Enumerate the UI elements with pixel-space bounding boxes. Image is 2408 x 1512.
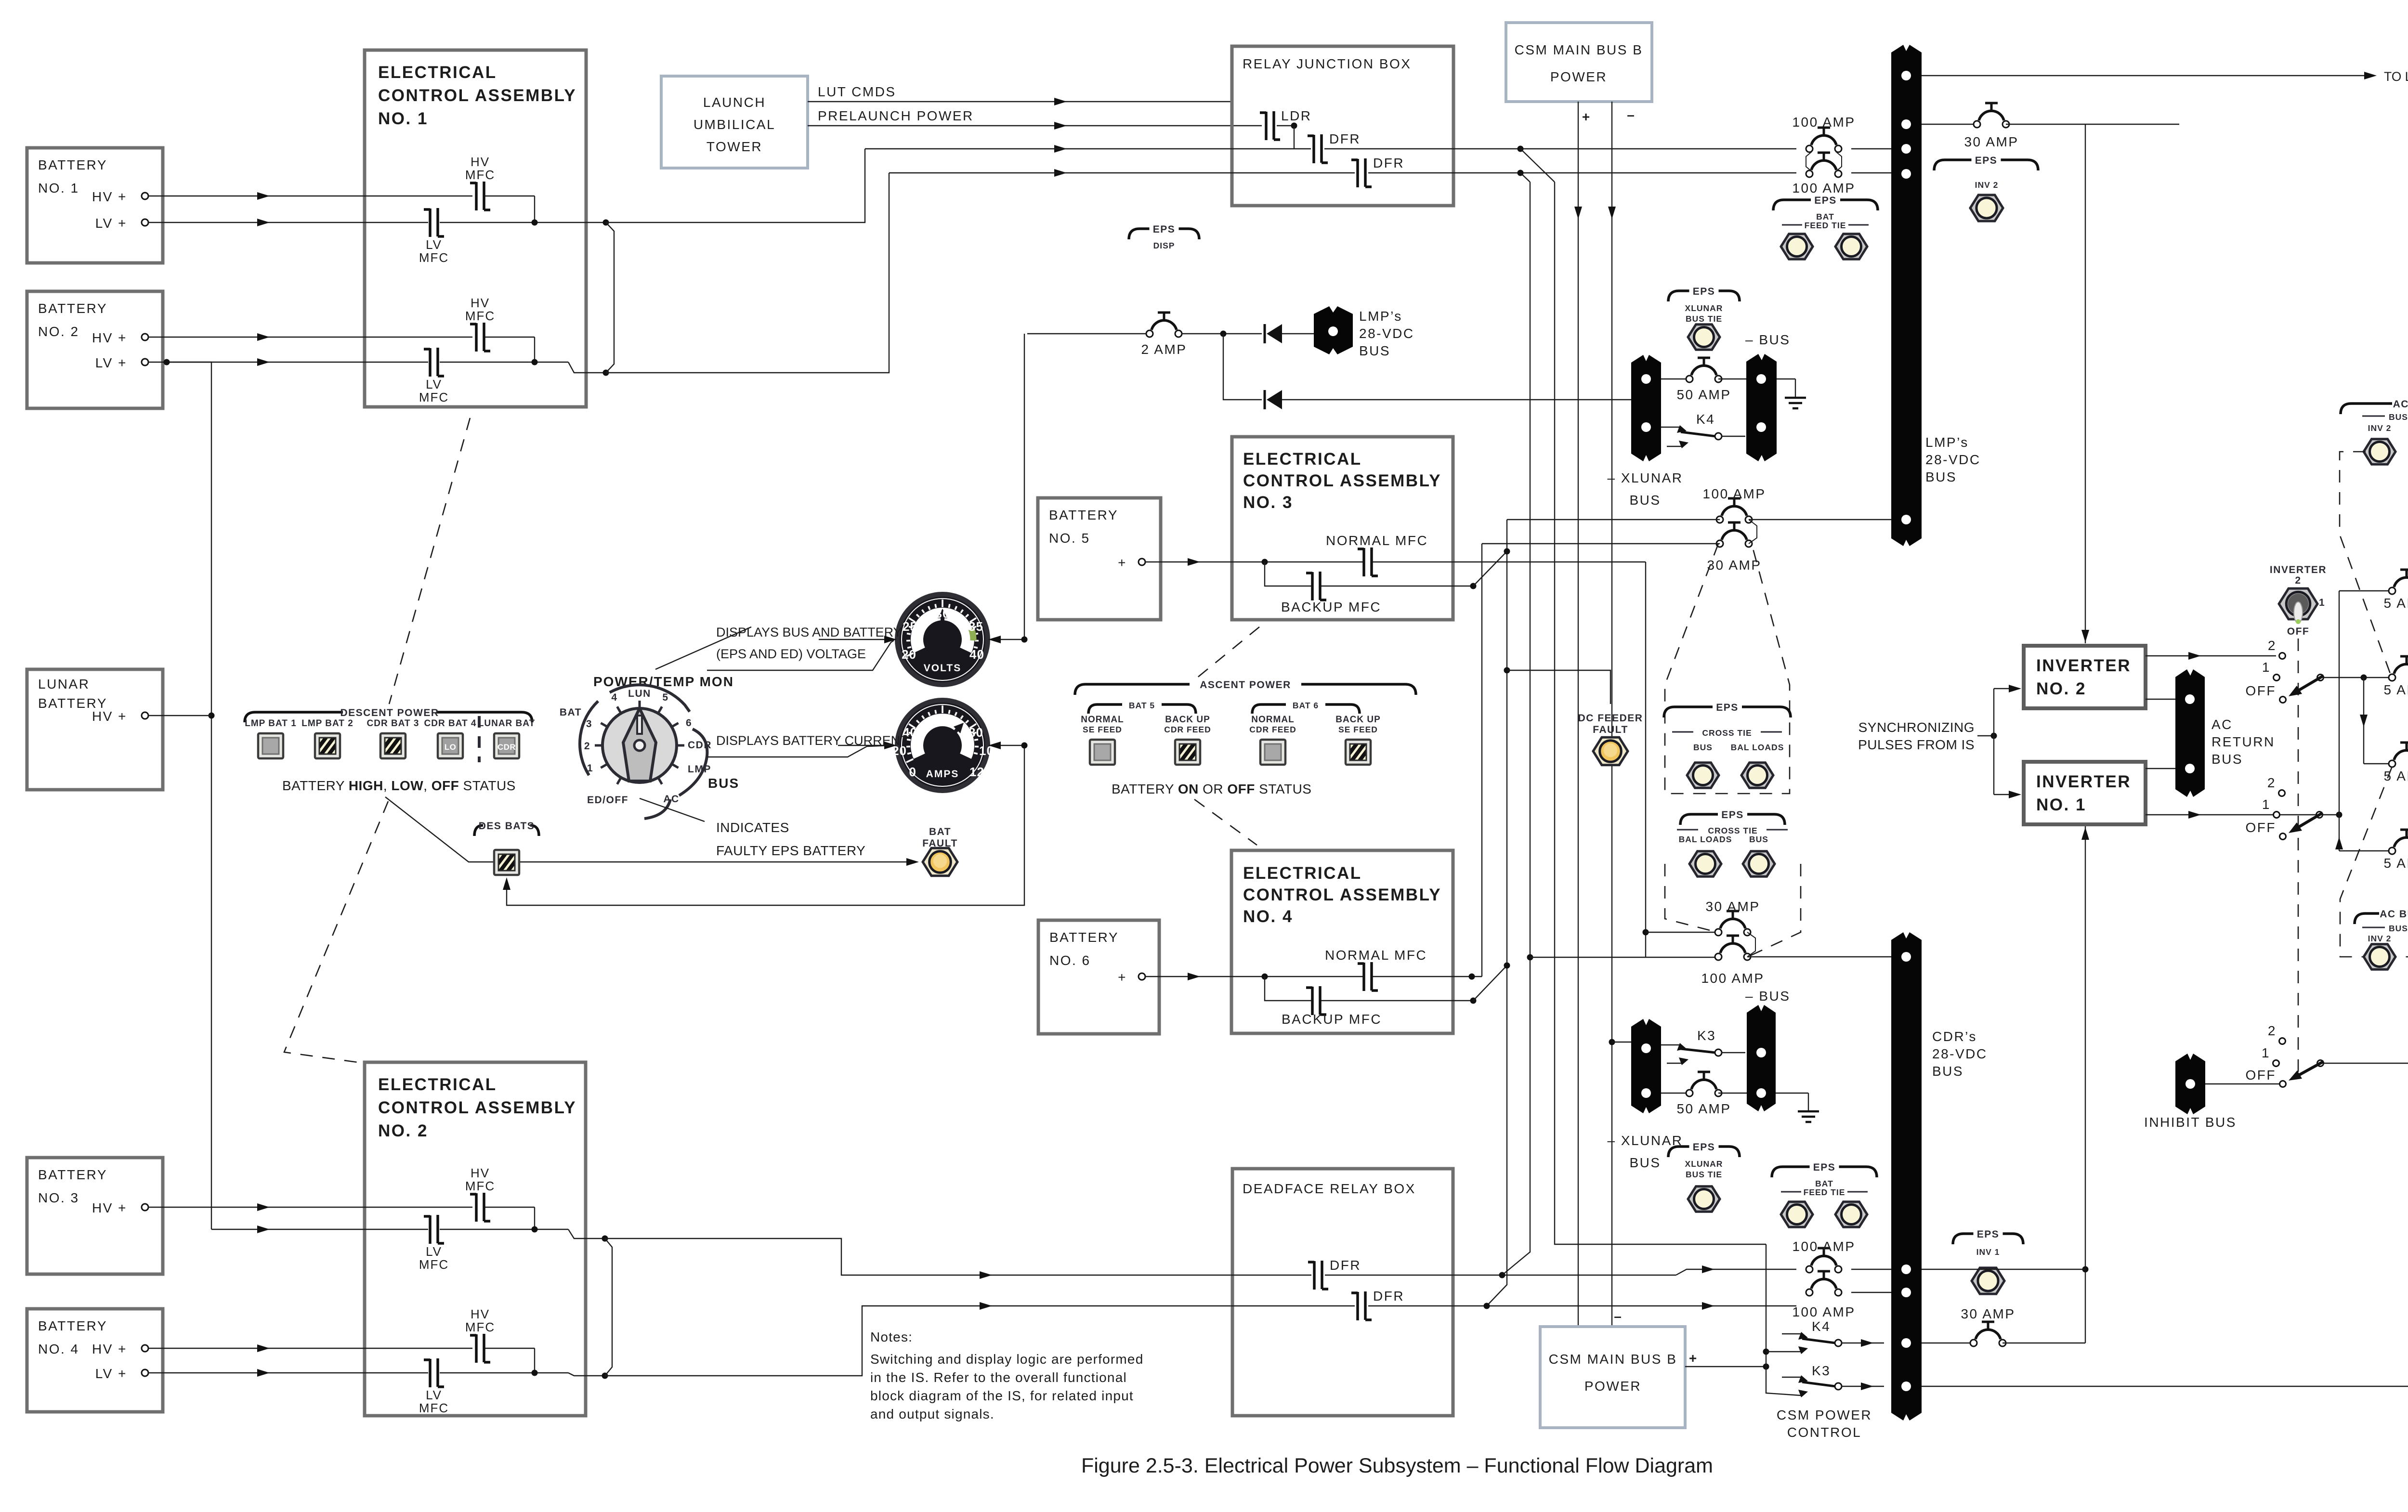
svg-text:OFF: OFF xyxy=(2246,820,2277,835)
svg-text:SE FEED: SE FEED xyxy=(1338,725,1378,734)
svg-text:NO. 1: NO. 1 xyxy=(2036,795,2086,814)
svg-text:VOLTS: VOLTS xyxy=(924,663,961,674)
svg-text:SYNCHRONIZING: SYNCHRONIZING xyxy=(1858,720,1975,735)
svg-text:NO. 4: NO. 4 xyxy=(38,1342,79,1356)
svg-text:INDICATES: INDICATES xyxy=(716,820,789,835)
svg-text:ELECTRICAL: ELECTRICAL xyxy=(378,1075,497,1094)
svg-text:NO. 4: NO. 4 xyxy=(1243,907,1293,926)
svg-text:20: 20 xyxy=(902,647,916,662)
svg-text:1: 1 xyxy=(2262,1045,2270,1060)
svg-text:5 AMP: 5 AMP xyxy=(2384,856,2408,871)
svg-text:HV +: HV + xyxy=(92,709,127,724)
svg-text:NO. 1: NO. 1 xyxy=(378,109,428,128)
svg-text:30: 30 xyxy=(935,606,950,621)
svg-text:LV +: LV + xyxy=(95,216,127,231)
svg-text:EPS: EPS xyxy=(1716,702,1739,713)
svg-text:DFR: DFR xyxy=(1330,1258,1361,1273)
svg-text:NORMAL MFC: NORMAL MFC xyxy=(1326,533,1428,548)
svg-text:DFR: DFR xyxy=(1329,131,1361,146)
svg-text:DISPLAYS BUS AND BATTERY: DISPLAYS BUS AND BATTERY xyxy=(716,625,902,639)
svg-text:2 AMP: 2 AMP xyxy=(1141,342,1187,357)
svg-text:CONTROL ASSEMBLY: CONTROL ASSEMBLY xyxy=(378,86,576,105)
svg-text:(EPS AND ED) VOLTAGE: (EPS AND ED) VOLTAGE xyxy=(716,647,866,661)
svg-text:HV: HV xyxy=(471,1166,490,1180)
svg-text:– XLUNAR: – XLUNAR xyxy=(1608,470,1683,485)
svg-text:CDR BAT 3: CDR BAT 3 xyxy=(367,718,419,729)
svg-text:MFC: MFC xyxy=(419,1257,449,1272)
svg-text:NO. 2: NO. 2 xyxy=(38,324,79,339)
svg-text:NORMAL MFC: NORMAL MFC xyxy=(1325,948,1427,963)
svg-text:LUNAR BAT: LUNAR BAT xyxy=(478,718,535,729)
svg-text:LUN: LUN xyxy=(628,688,651,699)
svg-text:CONTROL ASSEMBLY: CONTROL ASSEMBLY xyxy=(1243,471,1441,490)
svg-text:30 AMP: 30 AMP xyxy=(1964,134,2018,149)
svg-text:– BUS: – BUS xyxy=(1745,332,1790,347)
svg-text:4: 4 xyxy=(611,692,617,703)
svg-text:LMP’s: LMP’s xyxy=(1359,309,1402,324)
svg-text:INV 2: INV 2 xyxy=(1975,180,1999,190)
svg-text:FEED TIE: FEED TIE xyxy=(1804,1187,1845,1197)
svg-text:60: 60 xyxy=(935,712,950,727)
svg-text:UMBILICAL: UMBILICAL xyxy=(694,117,775,132)
svg-text:LUNAR: LUNAR xyxy=(38,677,90,691)
svg-text:in the IS. Refer to the overal: in the IS. Refer to the overall function… xyxy=(870,1370,1127,1385)
svg-text:BUS TIE: BUS TIE xyxy=(2389,412,2408,422)
svg-text:BUS TIE: BUS TIE xyxy=(2389,924,2408,933)
svg-text:BUS: BUS xyxy=(1693,743,1713,752)
svg-text:SE FEED: SE FEED xyxy=(1083,725,1122,734)
svg-text:OFF: OFF xyxy=(2287,626,2310,637)
svg-text:100 AMP: 100 AMP xyxy=(1792,181,1855,196)
svg-text:CSM POWER: CSM POWER xyxy=(1777,1408,1872,1422)
svg-text:2: 2 xyxy=(584,741,590,752)
svg-text:K4: K4 xyxy=(1696,412,1715,427)
svg-text:MFC: MFC xyxy=(465,168,495,182)
svg-text:INV 2: INV 2 xyxy=(2368,934,2392,943)
svg-text:HV: HV xyxy=(471,1307,490,1321)
svg-text:30 AMP: 30 AMP xyxy=(1705,899,1760,914)
svg-text:INVERTER: INVERTER xyxy=(2036,656,2131,675)
svg-text:INVERTER: INVERTER xyxy=(2036,772,2131,791)
svg-text:NO. 3: NO. 3 xyxy=(1243,493,1293,512)
svg-text:AC: AC xyxy=(663,794,679,805)
svg-text:ED/OFF: ED/OFF xyxy=(587,795,628,806)
svg-text:EPS: EPS xyxy=(1977,1229,2000,1240)
svg-text:NO. 5: NO. 5 xyxy=(1049,531,1090,546)
svg-text:30 AMP: 30 AMP xyxy=(1961,1306,2015,1321)
svg-text:BATTERY: BATTERY xyxy=(38,1167,107,1182)
svg-text:+: + xyxy=(1689,1351,1698,1366)
svg-text:CSM MAIN BUS B: CSM MAIN BUS B xyxy=(1515,42,1643,57)
svg-text:NO. 6: NO. 6 xyxy=(1049,953,1091,968)
svg-text:BACKUP MFC: BACKUP MFC xyxy=(1281,600,1381,614)
svg-text:5 AMP: 5 AMP xyxy=(2384,682,2408,697)
svg-text:HV +: HV + xyxy=(92,330,127,345)
svg-text:LMP BAT 2: LMP BAT 2 xyxy=(301,718,353,729)
svg-text:LV: LV xyxy=(426,1388,442,1402)
svg-text:EPS: EPS xyxy=(1693,1142,1715,1153)
svg-text:LV +: LV + xyxy=(95,1366,127,1381)
svg-text:RETURN: RETURN xyxy=(2212,734,2275,749)
svg-text:–: – xyxy=(1627,107,1636,122)
svg-text:HV: HV xyxy=(471,296,490,310)
svg-text:CONTROL: CONTROL xyxy=(1787,1425,1861,1440)
svg-text:BUS TIE: BUS TIE xyxy=(1686,314,1722,324)
svg-text:BAT: BAT xyxy=(1816,212,1834,222)
svg-text:POWER/TEMP MON: POWER/TEMP MON xyxy=(593,674,734,689)
svg-text:FAULT: FAULT xyxy=(1593,724,1628,735)
svg-text:RELAY JUNCTION BOX: RELAY JUNCTION BOX xyxy=(1243,56,1411,71)
svg-text:BACKUP MFC: BACKUP MFC xyxy=(1282,1012,1382,1027)
svg-text:1: 1 xyxy=(587,763,593,774)
svg-text:5: 5 xyxy=(662,692,668,703)
svg-text:LMP’s: LMP’s xyxy=(1925,435,1969,450)
svg-text:TOWER: TOWER xyxy=(707,139,762,154)
svg-text:– BUS: – BUS xyxy=(1745,989,1790,1004)
svg-text:100 AMP: 100 AMP xyxy=(1701,971,1764,986)
svg-text:EPS: EPS xyxy=(1693,286,1715,297)
svg-text:6: 6 xyxy=(686,717,692,729)
svg-text:BAL LOADS: BAL LOADS xyxy=(1679,834,1732,844)
svg-text:PULSES FROM IS: PULSES FROM IS xyxy=(1858,737,1975,752)
svg-text:100 AMP: 100 AMP xyxy=(1702,486,1766,501)
svg-text:CSM MAIN BUS B: CSM MAIN BUS B xyxy=(1549,1352,1677,1367)
svg-text:CDR’s: CDR’s xyxy=(1932,1029,1977,1044)
svg-text:CDR FEED: CDR FEED xyxy=(1164,725,1211,734)
svg-text:MFC: MFC xyxy=(465,1179,495,1193)
svg-text:DFR: DFR xyxy=(1373,156,1404,170)
svg-text:MFC: MFC xyxy=(465,1320,495,1334)
svg-text:MFC: MFC xyxy=(419,250,449,265)
svg-text:100 AMP: 100 AMP xyxy=(1792,1304,1855,1319)
svg-text:+: + xyxy=(1582,109,1591,124)
svg-text:1: 1 xyxy=(2262,797,2271,812)
svg-text:EPS: EPS xyxy=(1975,155,1998,166)
svg-text:NORMAL: NORMAL xyxy=(1081,715,1124,725)
svg-text:ELECTRICAL: ELECTRICAL xyxy=(378,63,497,82)
svg-text:BUS: BUS xyxy=(1359,343,1390,358)
svg-text:BATTERY: BATTERY xyxy=(38,301,107,316)
svg-text:ELECTRICAL: ELECTRICAL xyxy=(1243,450,1362,469)
svg-text:BACK UP: BACK UP xyxy=(1335,715,1381,725)
svg-text:1: 1 xyxy=(2262,660,2271,675)
svg-text:100 AMP: 100 AMP xyxy=(1792,1239,1855,1254)
svg-text:CDR: CDR xyxy=(688,740,712,751)
svg-text:INV 2: INV 2 xyxy=(2368,423,2392,433)
svg-text:DESCENT POWER: DESCENT POWER xyxy=(340,707,439,718)
svg-text:AC BUS A: AC BUS A xyxy=(2393,399,2408,410)
svg-text:CROSS TIE: CROSS TIE xyxy=(1702,728,1752,738)
svg-text:CDR BAT 4: CDR BAT 4 xyxy=(424,718,477,729)
svg-text:+: + xyxy=(1118,970,1127,985)
svg-text:PRELAUNCH POWER: PRELAUNCH POWER xyxy=(818,108,974,123)
svg-text:2: 2 xyxy=(2268,638,2277,653)
svg-text:NO. 3: NO. 3 xyxy=(38,1190,79,1205)
svg-text:DC FEEDER: DC FEEDER xyxy=(1578,713,1643,724)
svg-text:K3: K3 xyxy=(1697,1028,1716,1043)
svg-text:1: 1 xyxy=(2319,597,2325,608)
svg-text:BUS: BUS xyxy=(708,776,739,791)
svg-text:BUS TIE: BUS TIE xyxy=(1686,1170,1722,1179)
svg-text:LUT CMDS: LUT CMDS xyxy=(818,84,896,99)
svg-text:LO: LO xyxy=(445,743,457,752)
svg-text:DFR: DFR xyxy=(1373,1289,1404,1303)
svg-text:CONTROL ASSEMBLY: CONTROL ASSEMBLY xyxy=(1243,886,1441,904)
svg-text:BUS: BUS xyxy=(1925,469,1957,484)
svg-text:Switching and display logic ar: Switching and display logic are performe… xyxy=(870,1352,1143,1367)
svg-text:CONTROL ASSEMBLY: CONTROL ASSEMBLY xyxy=(378,1098,576,1117)
svg-text:NO. 2: NO. 2 xyxy=(2036,679,2086,698)
svg-text:BAT 5: BAT 5 xyxy=(1129,701,1155,710)
svg-text:80: 80 xyxy=(968,725,983,740)
svg-text:BAT 6: BAT 6 xyxy=(1293,701,1319,710)
svg-text:2: 2 xyxy=(2268,1023,2277,1038)
svg-text:HV +: HV + xyxy=(92,189,127,204)
svg-text:XLUNAR: XLUNAR xyxy=(1685,1159,1723,1169)
svg-text:BAT: BAT xyxy=(560,707,582,718)
svg-text:2: 2 xyxy=(2267,775,2276,790)
svg-text:MFC: MFC xyxy=(419,1401,449,1415)
svg-text:BATTERY: BATTERY xyxy=(38,157,107,172)
svg-text:5 AMP: 5 AMP xyxy=(2384,596,2408,611)
svg-text:–: – xyxy=(1614,1309,1623,1324)
svg-text:INHIBIT BUS: INHIBIT BUS xyxy=(2144,1115,2237,1130)
svg-text:FEED TIE: FEED TIE xyxy=(1805,221,1846,230)
svg-text:POWER: POWER xyxy=(1584,1379,1641,1394)
svg-text:BUS: BUS xyxy=(1629,493,1661,508)
svg-text:HV +: HV + xyxy=(92,1342,127,1356)
svg-text:0: 0 xyxy=(909,765,916,779)
svg-text:NO. 1: NO. 1 xyxy=(38,181,79,196)
svg-text:BATTERY ON OR OFF STATUS: BATTERY ON OR OFF STATUS xyxy=(1112,782,1311,796)
svg-text:2: 2 xyxy=(2295,575,2301,586)
svg-text:AC BUS B: AC BUS B xyxy=(2380,909,2408,920)
svg-text:DISP: DISP xyxy=(1153,241,1175,250)
svg-text:BAT: BAT xyxy=(1815,1179,1833,1188)
svg-text:BUS: BUS xyxy=(2212,752,2243,767)
svg-text:25: 25 xyxy=(903,619,917,634)
svg-text:50 AMP: 50 AMP xyxy=(1676,387,1731,402)
svg-text:– XLUNAR: – XLUNAR xyxy=(1608,1133,1683,1148)
svg-text:TO LM SUBSYSTEMS: TO LM SUBSYSTEMS xyxy=(2384,69,2408,84)
svg-text:OFF: OFF xyxy=(2246,683,2277,698)
svg-text:BACK UP: BACK UP xyxy=(1165,715,1210,725)
svg-text:and output signals.: and output signals. xyxy=(870,1407,995,1421)
svg-text:100 AMP: 100 AMP xyxy=(1792,115,1855,130)
svg-text:30 AMP: 30 AMP xyxy=(1707,558,1761,573)
svg-text:POWER: POWER xyxy=(1550,69,1607,84)
svg-text:50 AMP: 50 AMP xyxy=(1676,1101,1731,1116)
svg-text:K3: K3 xyxy=(1812,1363,1831,1378)
svg-text:CDR: CDR xyxy=(497,743,516,752)
svg-text:LMP BAT 1: LMP BAT 1 xyxy=(245,718,297,729)
svg-text:BUS: BUS xyxy=(1932,1064,1963,1079)
svg-text:MFC: MFC xyxy=(465,309,495,323)
svg-text:28-VDC: 28-VDC xyxy=(1932,1046,1988,1061)
svg-text:Notes:: Notes: xyxy=(870,1330,913,1344)
svg-text:DES BATS: DES BATS xyxy=(479,821,535,832)
svg-text:BAT: BAT xyxy=(929,826,951,837)
svg-text:BUS: BUS xyxy=(1749,834,1768,844)
svg-text:LAUNCH: LAUNCH xyxy=(703,95,766,110)
svg-text:120: 120 xyxy=(969,765,992,779)
svg-text:BATTERY: BATTERY xyxy=(1049,508,1118,522)
svg-text:FAULTY EPS BATTERY: FAULTY EPS BATTERY xyxy=(716,843,865,858)
svg-text:5 AMP: 5 AMP xyxy=(2384,769,2408,783)
svg-text:K4: K4 xyxy=(1812,1319,1831,1334)
svg-text:28-VDC: 28-VDC xyxy=(1359,326,1414,341)
svg-text:CROSS TIE: CROSS TIE xyxy=(1708,826,1757,835)
svg-text:BAL LOADS: BAL LOADS xyxy=(1731,743,1784,752)
svg-text:28-VDC: 28-VDC xyxy=(1925,452,1981,467)
svg-text:BATTERY: BATTERY xyxy=(1049,930,1119,945)
svg-text:INV 1: INV 1 xyxy=(1976,1247,2000,1257)
svg-text:EPS: EPS xyxy=(1813,1162,1836,1173)
svg-text:40: 40 xyxy=(969,647,984,662)
svg-text:block diagram of the IS, for r: block diagram of the IS, for related inp… xyxy=(870,1388,1134,1403)
svg-text:EPS: EPS xyxy=(1814,195,1837,206)
svg-text:35: 35 xyxy=(968,619,983,634)
svg-text:EPS: EPS xyxy=(1721,809,1744,821)
svg-text:NO. 2: NO. 2 xyxy=(378,1121,428,1140)
svg-text:OFF: OFF xyxy=(2246,1068,2277,1082)
svg-text:ELECTRICAL: ELECTRICAL xyxy=(1243,864,1362,883)
svg-text:3: 3 xyxy=(586,718,592,730)
svg-text:NORMAL: NORMAL xyxy=(1251,715,1294,725)
svg-text:LV: LV xyxy=(426,237,442,252)
svg-text:LV: LV xyxy=(426,377,442,391)
svg-text:BATTERY: BATTERY xyxy=(38,1318,107,1333)
svg-text:DEADFACE RELAY BOX: DEADFACE RELAY BOX xyxy=(1243,1181,1416,1196)
svg-text:XLUNAR: XLUNAR xyxy=(1685,303,1723,313)
svg-text:+: + xyxy=(1118,555,1127,570)
svg-text:LDR: LDR xyxy=(1281,108,1312,123)
svg-text:INVERTER: INVERTER xyxy=(2270,564,2327,575)
svg-text:LMP: LMP xyxy=(688,764,711,775)
svg-text:CDR FEED: CDR FEED xyxy=(1249,725,1296,734)
svg-text:LV: LV xyxy=(426,1244,442,1259)
svg-text:EPS: EPS xyxy=(1153,224,1176,235)
svg-text:ASCENT POWER: ASCENT POWER xyxy=(1200,679,1291,691)
svg-text:HV +: HV + xyxy=(92,1200,127,1215)
svg-text:Figure 2.5-3. Electrical Power: Figure 2.5-3. Electrical Power Subsystem… xyxy=(1081,1454,1713,1477)
svg-text:BUS: BUS xyxy=(1629,1155,1661,1170)
svg-text:MFC: MFC xyxy=(419,390,449,404)
svg-text:LV +: LV + xyxy=(95,355,127,370)
svg-text:AMPS: AMPS xyxy=(926,769,959,780)
svg-text:BATTERY HIGH, LOW, OFF STA: BATTERY HIGH, LOW, OFF STATUS xyxy=(282,778,516,793)
svg-text:HV: HV xyxy=(471,155,490,169)
svg-text:AC: AC xyxy=(2212,717,2233,732)
